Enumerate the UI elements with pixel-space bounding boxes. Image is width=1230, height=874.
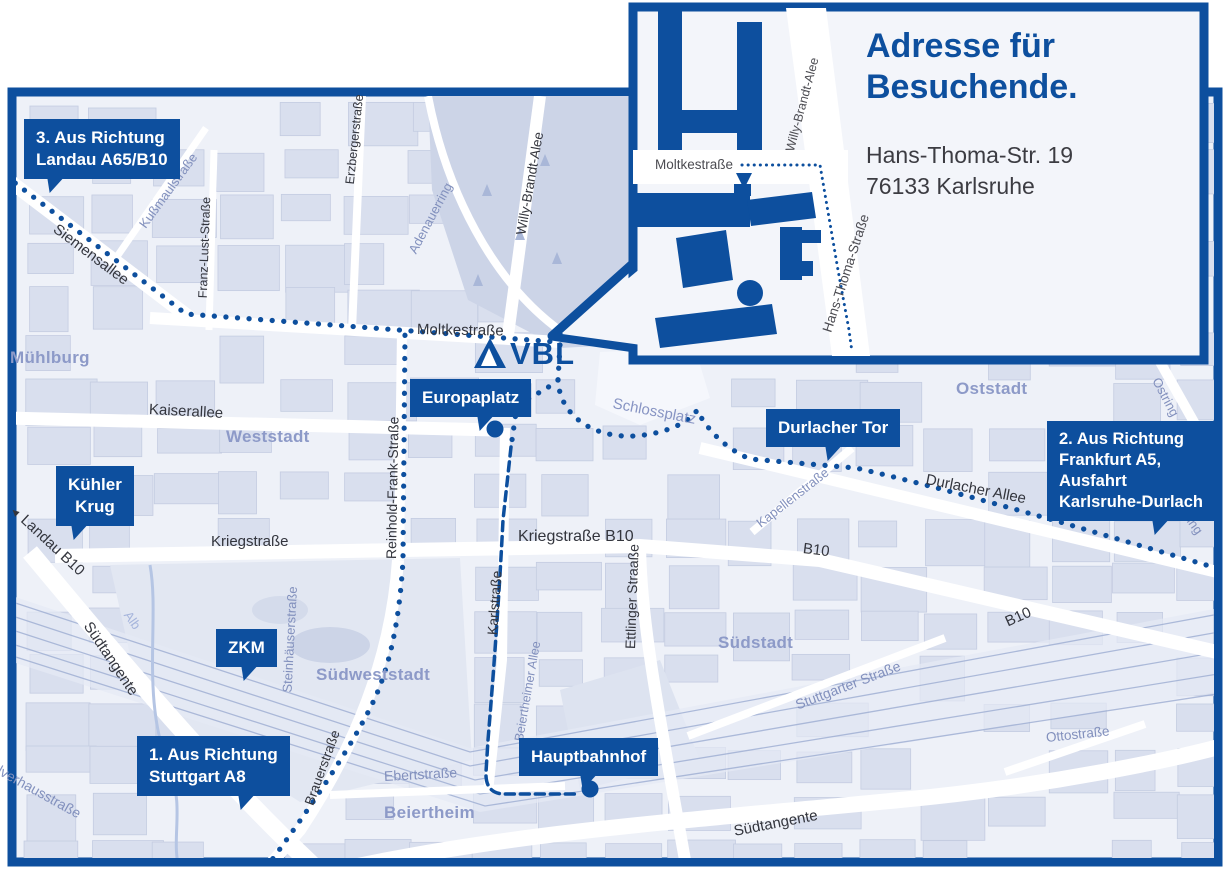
street-label-b10-mid: B10 <box>802 541 830 559</box>
karlsruhe-directions-map: Siemensallee Moltkestraße Kaiserallee Kr… <box>0 0 1230 874</box>
district-label-oststadt: Oststadt <box>956 380 1027 397</box>
callout-direction-3-landau: 3. Aus Richtung Landau A65/B10 <box>24 119 180 179</box>
callout-durlacher-tor: Durlacher Tor <box>766 409 900 447</box>
callout-pointer <box>475 416 494 431</box>
callout-pointer <box>1150 520 1169 535</box>
street-label-kaiserallee: Kaiserallee <box>149 402 224 421</box>
callout-pointer <box>236 795 255 810</box>
district-label-muehlburg: Mühlburg <box>10 349 90 366</box>
street-label-kriegstrasse: Kriegstraße <box>211 534 289 549</box>
callout-pointer <box>578 775 597 790</box>
inset-title: Adresse für Besuchende. <box>866 26 1078 108</box>
district-label-weststadt: Weststadt <box>226 428 310 445</box>
callout-zkm: ZKM <box>216 629 277 667</box>
district-label-suedweststadt: Südweststadt <box>316 666 430 683</box>
callout-pointer <box>239 666 258 681</box>
street-label-ebertstrasse: Ebertstraße <box>384 765 458 783</box>
district-label-suedstadt: Südstadt <box>718 634 793 651</box>
callout-direction-1-stuttgart: 1. Aus Richtung Stuttgart A8 <box>137 736 290 796</box>
callout-direction-2-frankfurt: 2. Aus Richtung Frankfurt A5, Ausfahrt K… <box>1047 421 1215 521</box>
inset-street-label-moltkestrasse: Moltkestraße <box>655 158 733 172</box>
vbl-triangle-icon <box>473 337 507 369</box>
callout-hauptbahnhof: Hauptbahnhof <box>519 738 658 776</box>
callout-pointer <box>45 178 64 193</box>
vbl-logo-text: VBL <box>510 339 575 369</box>
vbl-logo: VBL <box>473 337 575 369</box>
callout-kuehler-krug: Kühler Krug <box>56 466 134 526</box>
callout-pointer <box>69 525 88 540</box>
callout-pointer <box>823 446 842 461</box>
street-label-ettlinger-strasse: Ettlinger Straaße <box>623 544 641 649</box>
inset-address: Hans-Thoma-Str. 19 76133 Karlsruhe <box>866 140 1073 202</box>
district-label-beiertheim: Beiertheim <box>384 804 475 821</box>
street-label-kriegstrasse-b10: Kriegstraße B10 <box>518 529 634 545</box>
street-label-reinhold-frank-strasse: Reinhold-Frank-Straße <box>384 417 400 560</box>
callout-europaplatz: Europaplatz <box>410 379 531 417</box>
